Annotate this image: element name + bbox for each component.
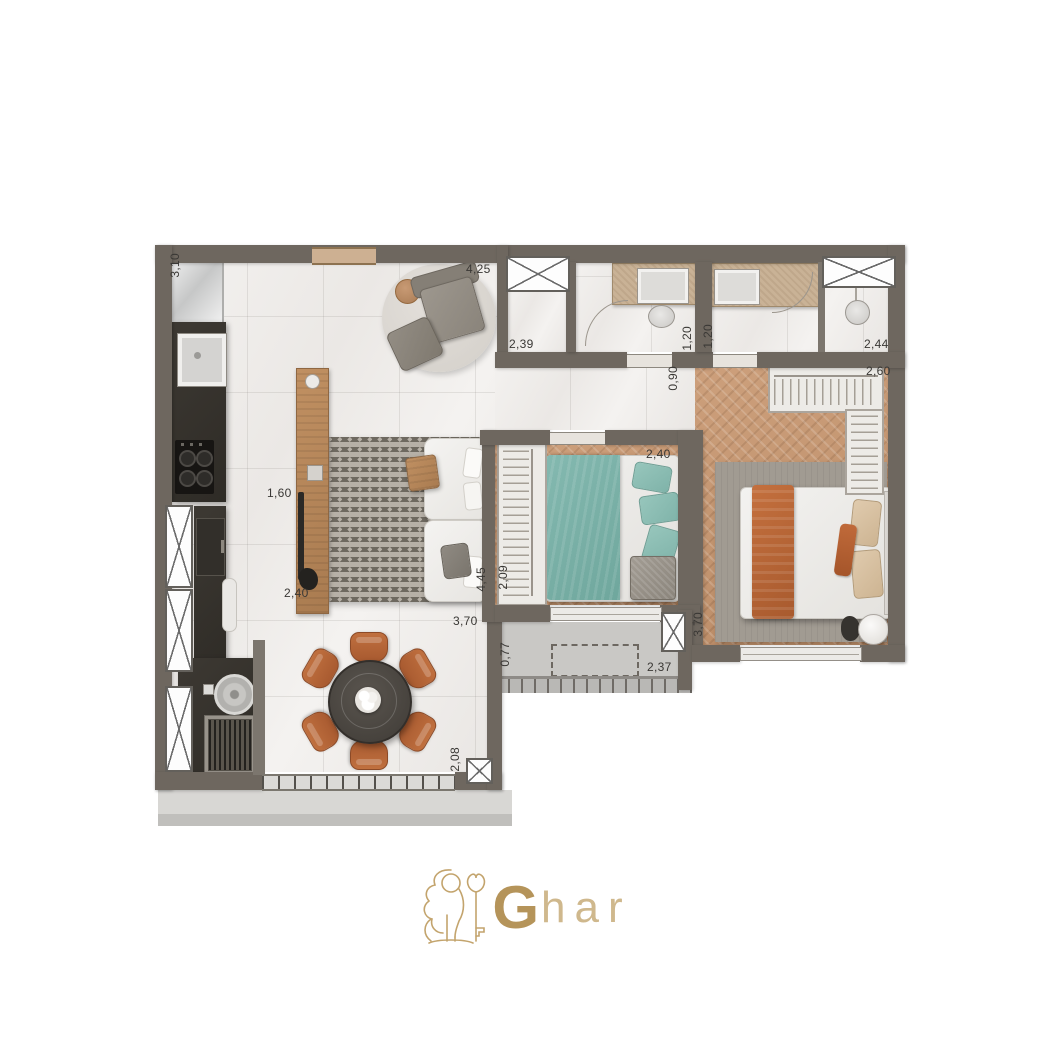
balcony-dashed-outline	[551, 644, 639, 677]
hallway-floor	[495, 363, 695, 430]
tv-bar	[298, 492, 304, 580]
bathroom2-sink	[715, 270, 759, 304]
cooktop-burner-2	[196, 450, 213, 467]
table-flowers	[355, 687, 381, 713]
left-window-x-icon-1	[165, 505, 193, 588]
dim-balcony-depth: 0,77	[498, 642, 512, 667]
master-window	[740, 647, 862, 661]
shaft-x-icon	[506, 256, 570, 292]
sofa-side-table	[405, 454, 440, 492]
master-pillow-2	[850, 549, 884, 599]
logo-letter-g: G	[492, 878, 539, 938]
dim-living-rug-width: 2,40	[284, 586, 309, 600]
wall-right	[888, 245, 905, 662]
dim-master-closet: 2,60	[866, 364, 891, 378]
entry-threshold	[312, 247, 376, 265]
dim-bath2-width: 2,44	[864, 337, 889, 351]
brand-logo: G har	[0, 862, 1050, 953]
wall-living-bedroom2	[482, 430, 495, 622]
dim-living-length: 4,45	[474, 567, 488, 592]
bathroom1-toilet	[648, 305, 675, 328]
dim-living-bottom-width: 3,70	[453, 614, 478, 628]
wall-bedroom2-top-a	[480, 430, 550, 445]
bathroom2-basin	[845, 300, 870, 325]
dining-chair-bottom	[350, 740, 388, 770]
cabinet-handle	[221, 540, 224, 553]
master-closet-side	[845, 409, 884, 495]
terrace-slab	[158, 790, 512, 816]
bathroom1-sink	[638, 269, 688, 303]
dim-hall-passage: 0,90	[666, 366, 680, 391]
floor-plan-canvas: 3,10 4,25 2,39 1,20 1,20 0,90 2,44 2,60 …	[0, 0, 1050, 1050]
laundry-tub	[214, 674, 255, 715]
bathroom2-door-sill	[713, 354, 757, 368]
balcony-shaft-x-icon	[661, 612, 686, 652]
living-sliding-door	[262, 774, 455, 791]
laundry-tap	[203, 684, 214, 695]
dim-bath1-right: 1,20	[680, 326, 694, 351]
bedroom2-closet-rail	[531, 449, 533, 596]
left-window-x-icon-3	[165, 686, 193, 772]
cooktop-burner-4	[196, 470, 213, 487]
lion-with-key-icon	[418, 862, 496, 953]
dim-bath2-left: 1,20	[701, 324, 715, 349]
balcony-railing	[495, 676, 692, 693]
dim-master-length: 3,70	[691, 612, 705, 637]
master-throw-blanket	[752, 485, 794, 619]
bedroom2-door-sill	[550, 432, 605, 445]
bedroom2-duvet	[545, 455, 620, 600]
wall-bedroom2-bottom-a	[495, 605, 550, 622]
dim-living-top-width: 4,25	[466, 262, 491, 276]
bedroom2-bench	[630, 556, 676, 600]
kitchen-sink	[178, 334, 226, 386]
dim-terrace-edge: 2,08	[448, 747, 462, 772]
terrace-slab-edge	[158, 814, 512, 826]
bathroom2-window-x-icon	[822, 256, 896, 288]
dim-balcony-width: 2,37	[647, 660, 672, 674]
bedroom2-pillow-2	[638, 491, 682, 525]
wall-laundry-edge	[253, 640, 265, 775]
dim-kitchen-top: 3,10	[168, 253, 182, 278]
sofa-pillow-gray	[440, 542, 472, 580]
cutting-board	[222, 578, 237, 632]
master-closet-shelves	[851, 415, 878, 489]
living-shaft-x-icon	[466, 758, 493, 784]
wall-bath-south-a	[495, 352, 627, 368]
cooktop-burner-1	[179, 450, 196, 467]
master-closet-rail	[774, 375, 878, 377]
master-nightstand	[858, 614, 889, 645]
sofa-pillow-2	[463, 481, 484, 511]
cooktop-knobs	[181, 443, 207, 446]
dim-bedroom2-width: 2,40	[646, 447, 671, 461]
dim-shower-room: 2,39	[509, 337, 534, 351]
dim-kitchen-aisle: 1,60	[267, 486, 292, 500]
washing-machine-grid	[208, 719, 252, 771]
wall-master-bottom-b	[860, 645, 905, 662]
console-knob	[305, 374, 320, 389]
bedroom2-window	[550, 607, 662, 621]
console-box	[307, 465, 323, 481]
dining-chair-top	[350, 632, 388, 662]
logo-text-har: har	[541, 886, 632, 930]
left-window-x-icon-2	[165, 589, 193, 672]
wall-bottom-left-a	[155, 772, 262, 790]
master-closet-hangers	[774, 379, 878, 405]
kitchen-sink-drain	[194, 352, 201, 359]
cooktop-burner-3	[179, 470, 196, 487]
dim-bedroom2-length: 2,09	[496, 565, 510, 590]
wall-master-bottom-a	[692, 645, 740, 662]
